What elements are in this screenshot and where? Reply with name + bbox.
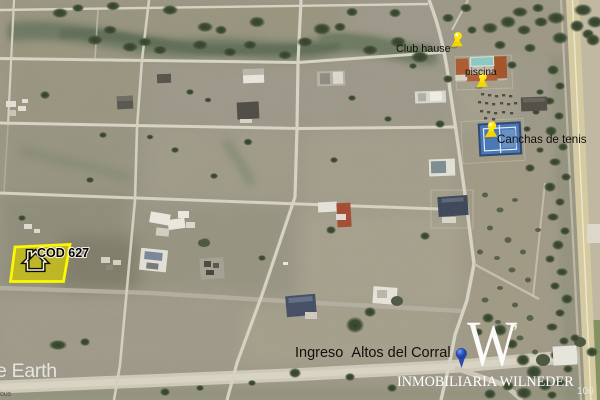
svg-text:piscina: piscina xyxy=(465,67,497,78)
svg-text:Ingreso Altos del Corral: Ingreso Altos del Corral xyxy=(295,345,451,361)
svg-text:W: W xyxy=(467,307,517,379)
svg-text:Canchas de tenis: Canchas de tenis xyxy=(497,133,587,146)
svg-text:Club hause: Club hause xyxy=(396,43,451,55)
svg-text:ous: ous xyxy=(0,391,12,398)
svg-text:100: 100 xyxy=(577,386,594,397)
svg-text:INMOBILIARIA WILNEDER: INMOBILIARIA WILNEDER xyxy=(397,374,574,390)
svg-text:e Earth: e Earth xyxy=(0,360,57,382)
svg-text:COD 627: COD 627 xyxy=(37,246,89,260)
svg-text:’: ’ xyxy=(512,321,519,343)
